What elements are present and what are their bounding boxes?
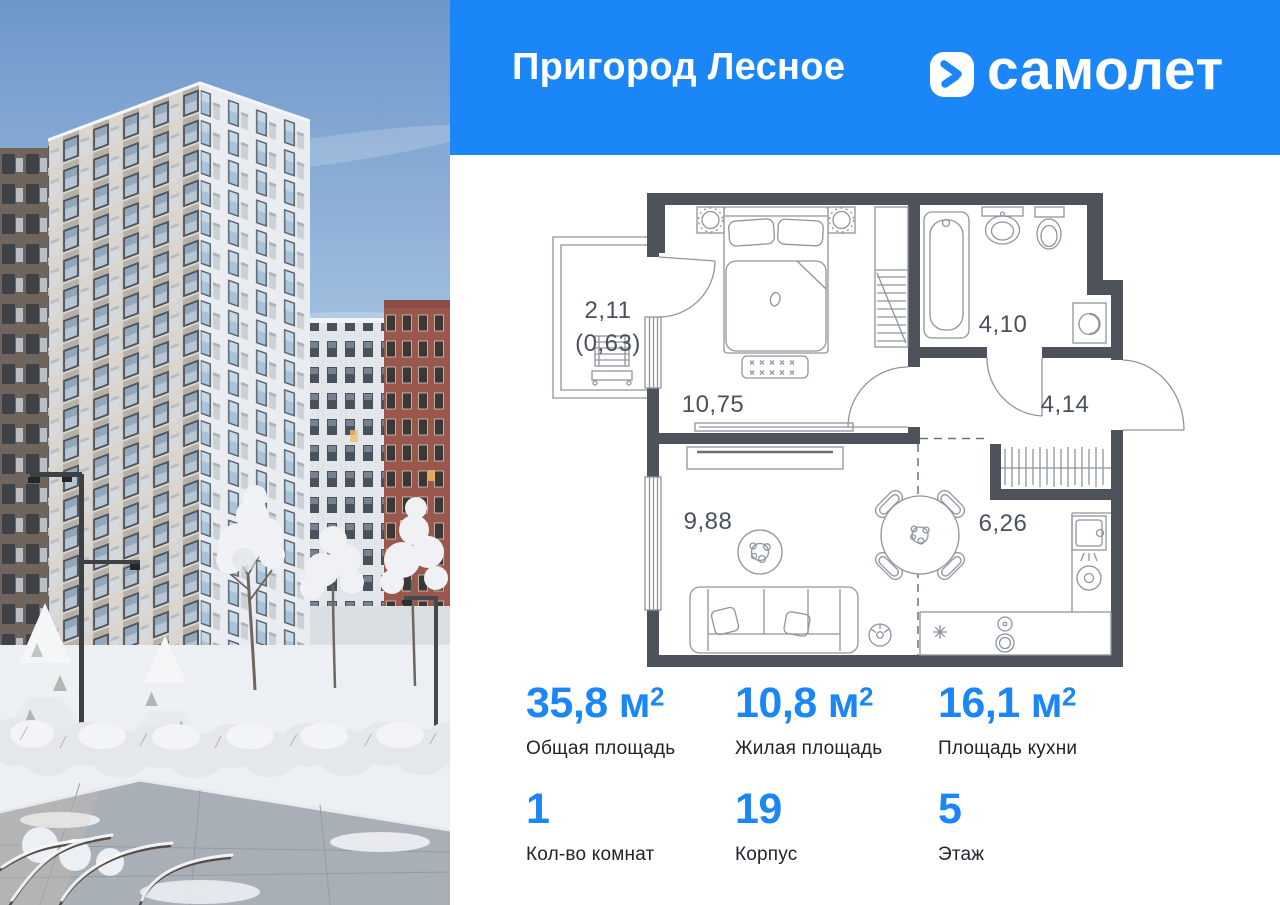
dining-table <box>881 496 959 574</box>
kitchen-sink <box>1072 516 1106 550</box>
hero-photo <box>0 0 450 905</box>
stat-rooms-count-label: Кол-во комнат <box>526 844 654 866</box>
washing-machine <box>1073 303 1106 343</box>
background-buildings <box>296 300 450 690</box>
stat-living-area: 10,8м2 Жилая площадь <box>735 682 882 760</box>
brand-logo-text: самолет <box>987 48 1224 93</box>
stat-living-area-value: 10,8м2 <box>735 682 882 725</box>
lamp-right <box>833 212 850 229</box>
bathtub <box>924 212 969 338</box>
stat-floor-value: 5 <box>938 788 984 831</box>
bed-bench <box>742 356 808 378</box>
samolet-arrow-chevron-icon <box>930 52 974 97</box>
room-area-loggia-coef: (0,63) <box>575 330 641 357</box>
dining-set <box>873 488 968 583</box>
stat-building-label: Корпус <box>735 844 797 866</box>
stat-kitchen-area-label: Площадь кухни <box>938 738 1077 760</box>
stat-floor-label: Этаж <box>938 844 984 866</box>
balcony-door <box>659 257 715 317</box>
room-area-living-room: 9,88 <box>684 508 733 535</box>
kitchen-counter <box>920 612 1111 655</box>
bed <box>724 207 828 353</box>
stat-building-value: 19 <box>735 788 797 831</box>
room-area-kitchen: 6,26 <box>979 510 1028 537</box>
balcony-window <box>645 317 661 388</box>
bedroom-door <box>848 367 908 427</box>
floor-lamp <box>869 624 891 646</box>
dark-side-tower <box>0 148 48 690</box>
toilet <box>1035 207 1064 249</box>
hall-closet <box>1001 447 1111 487</box>
wardrobe <box>875 207 908 347</box>
room-area-bedroom: 10,75 <box>682 391 745 418</box>
room-area-loggia: 2,11 <box>585 297 632 324</box>
coffee-table <box>738 530 782 574</box>
room-area-hallway: 4,14 <box>1041 391 1090 418</box>
living-room-window <box>645 477 661 610</box>
stat-floor: 5 Этаж <box>938 788 984 866</box>
stat-total-area: 35,8м2 Общая площадь <box>526 682 675 760</box>
brand-logo: самолет <box>930 52 1224 97</box>
stove <box>1077 553 1101 590</box>
stat-kitchen-area: 16,1м2 Площадь кухни <box>938 682 1077 760</box>
stat-rooms-count-value: 1 <box>526 788 654 831</box>
stat-kitchen-area-value: 16,1м2 <box>938 682 1077 725</box>
bathroom-sink <box>982 207 1023 244</box>
header-bar: Пригород Лесное самолет <box>450 0 1280 155</box>
bathroom-door <box>987 358 1042 416</box>
bedroom-dresser <box>695 423 853 431</box>
stat-building: 19 Корпус <box>735 788 797 866</box>
stat-total-area-value: 35,8м2 <box>526 682 675 725</box>
stat-total-area-label: Общая площадь <box>526 738 675 760</box>
project-title: Пригород Лесное <box>512 46 845 89</box>
floor-plan: 2,11 (0,63) 10,75 4,10 4,14 9,88 6,26 <box>545 185 1195 675</box>
tv-console <box>687 447 843 469</box>
stat-rooms-count: 1 Кол-во комнат <box>526 788 654 866</box>
stat-living-area-label: Жилая площадь <box>735 738 882 760</box>
entrance-door <box>1123 360 1184 430</box>
room-area-bathroom: 4,10 <box>979 311 1028 338</box>
sofa <box>690 587 858 653</box>
listing-card: Пригород Лесное самолет <box>0 0 1280 905</box>
lamp-left <box>702 212 719 229</box>
living-room-furniture <box>687 447 891 653</box>
